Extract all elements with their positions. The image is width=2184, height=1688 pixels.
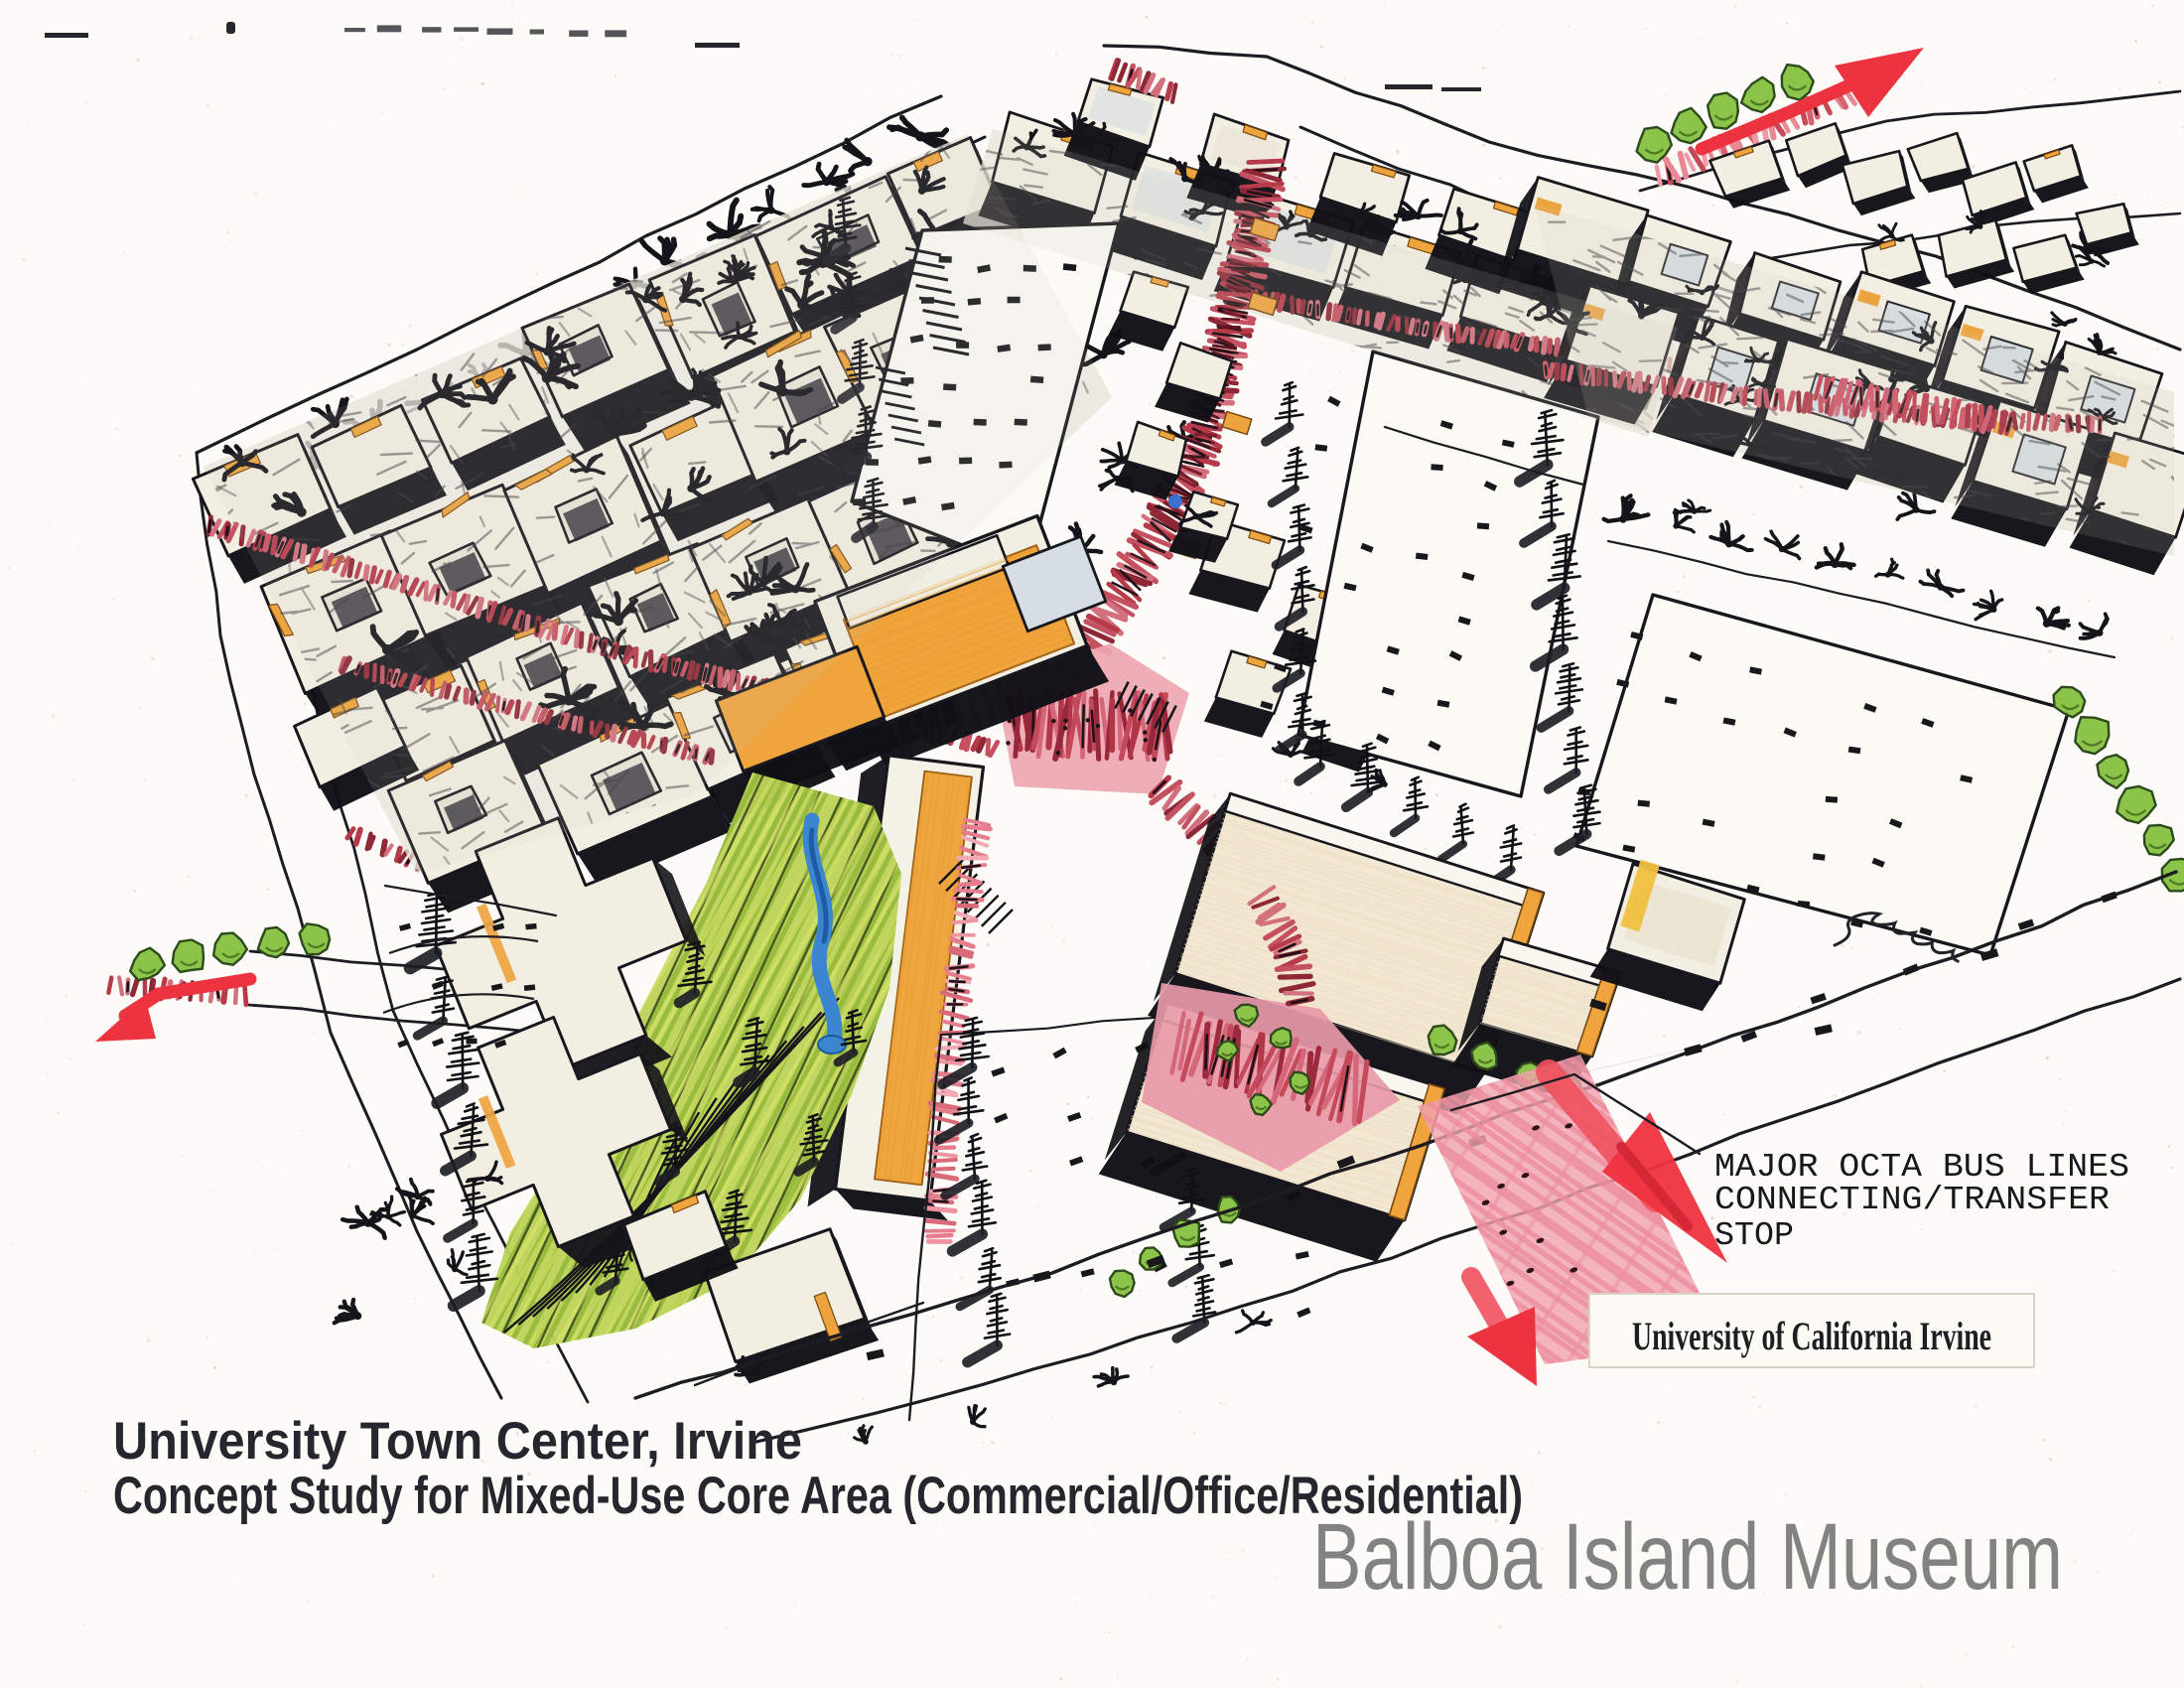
svg-text:MAJOR OCTA BUS LINES: MAJOR OCTA BUS LINES (1714, 1149, 2129, 1186)
svg-text:University Town Center, Irvine: University Town Center, Irvine (113, 1412, 802, 1471)
svg-text:STOP: STOP (1714, 1217, 1794, 1254)
svg-text:University of California Irvin: University of California Irvine (1632, 1314, 1991, 1358)
svg-text:CONNECTING/TRANSFER: CONNECTING/TRANSFER (1714, 1182, 2110, 1218)
svg-text:Concept Study for Mixed-Use Co: Concept Study for Mixed-Use Core Area (C… (113, 1467, 1523, 1525)
svg-text:Balboa Island Museum: Balboa Island Museum (1312, 1504, 2063, 1610)
